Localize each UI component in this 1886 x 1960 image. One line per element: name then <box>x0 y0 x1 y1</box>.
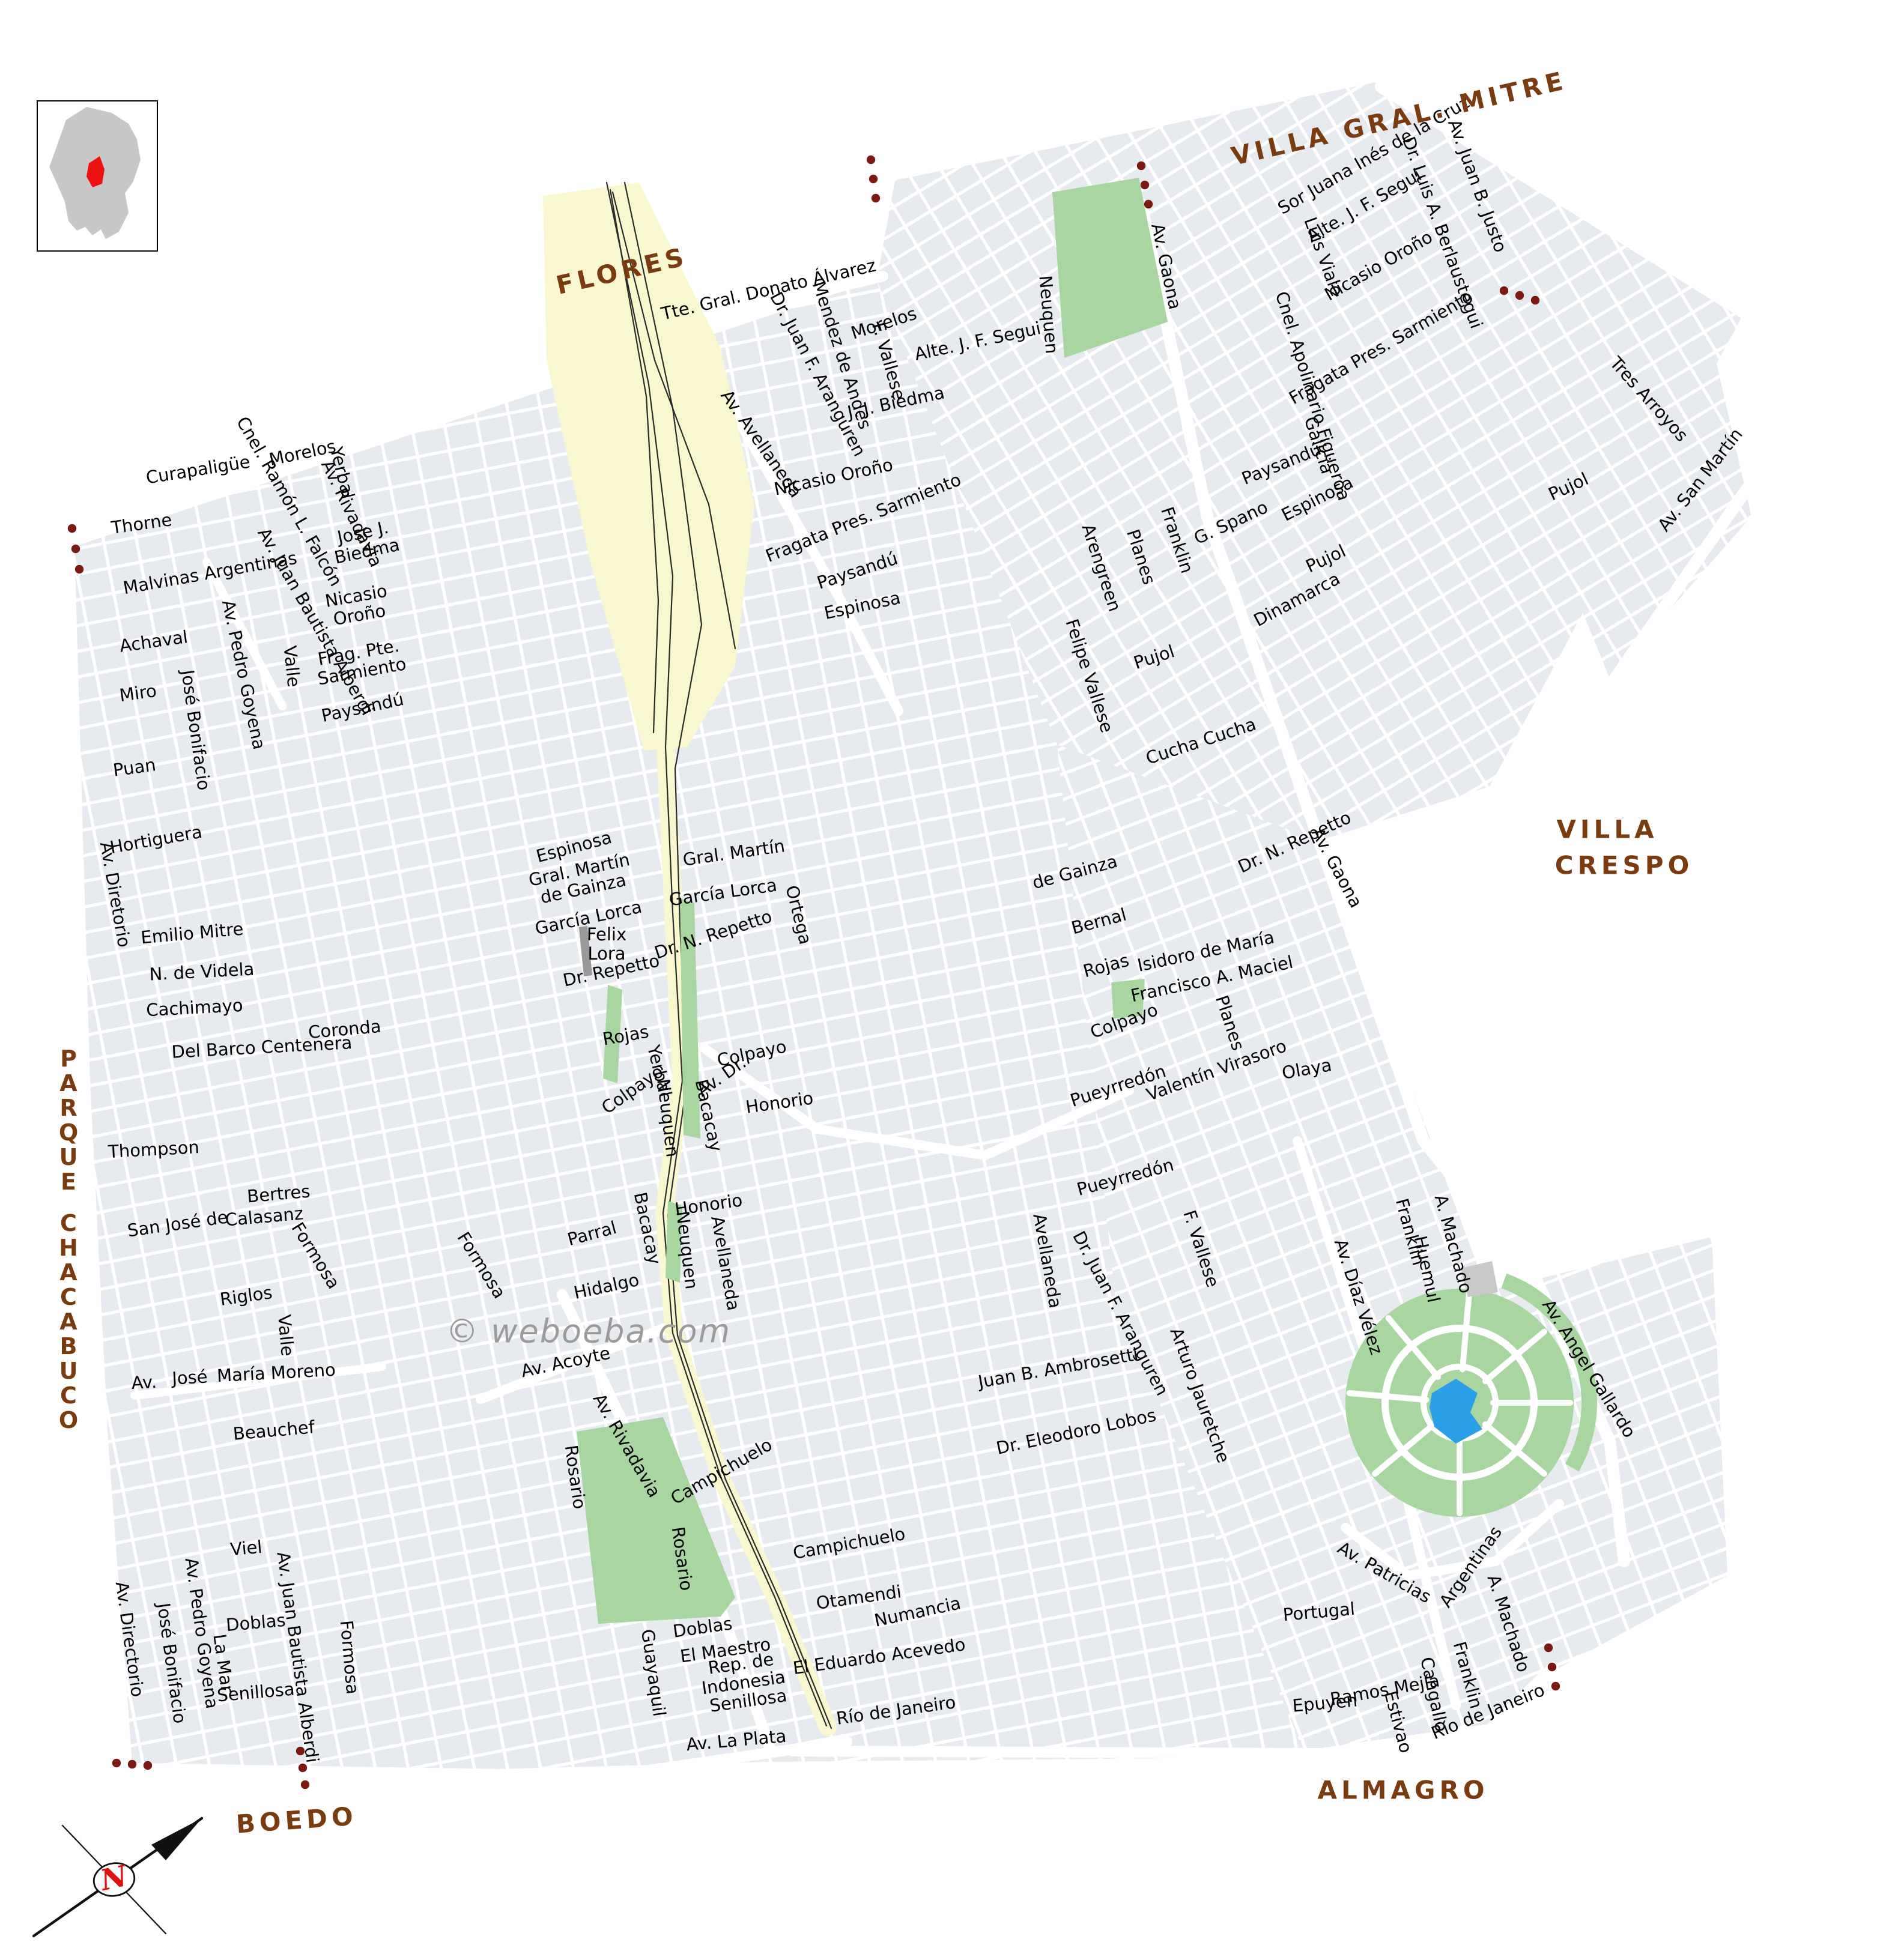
neighborhood-label-letter: B <box>60 1333 77 1360</box>
street-label: Valle <box>279 645 304 689</box>
neighborhood-label-letter: Q <box>59 1119 78 1146</box>
neighborhood-label-letter: C <box>60 1382 77 1409</box>
neighborhood-label: VILLA <box>1556 815 1658 844</box>
map-root: CurapaligüeThorneMalvinas ArgentinasAcha… <box>0 0 1886 1958</box>
compass-arrowhead <box>151 1818 202 1860</box>
boundary-dash <box>1544 1644 1553 1652</box>
neighborhood-label-letter: R <box>59 1095 77 1121</box>
watermark: © weboeba.com <box>446 1312 731 1350</box>
neighborhood-label: CRESPO <box>1555 851 1694 880</box>
boundary-dash <box>867 156 875 164</box>
inset-locator-map <box>37 101 157 251</box>
compass-rose: N <box>34 1818 202 1936</box>
neighborhood-label-letter: A <box>59 1070 77 1096</box>
boundary-dash <box>68 524 76 533</box>
boundary-dash <box>1531 296 1539 304</box>
boundary-dash <box>1137 162 1145 170</box>
boundary-dash <box>301 1780 309 1789</box>
boundary-dash <box>872 194 880 202</box>
boundary-dash <box>75 565 83 573</box>
boundary-dash <box>299 1764 307 1772</box>
boundary-dash <box>869 175 878 183</box>
boundary-dash <box>144 1761 152 1770</box>
street-label: Curapaligüe <box>144 452 251 488</box>
boundary-dash <box>1551 1682 1560 1690</box>
neighborhood-label-letter: C <box>60 1284 77 1310</box>
city-map: CurapaligüeThorneMalvinas ArgentinasAcha… <box>0 0 1886 1958</box>
neighborhood-label-letter: U <box>59 1358 78 1384</box>
neighborhood-label-letter: A <box>59 1259 77 1286</box>
boundary-dash <box>1141 181 1149 189</box>
boundary-dash <box>1515 291 1524 300</box>
street-label: Viel <box>229 1537 263 1560</box>
neighborhood-label-letter: H <box>59 1235 78 1261</box>
neighborhood-label-letter: U <box>59 1144 78 1170</box>
street-label: Valle <box>274 1314 298 1357</box>
boundary-dash <box>1548 1663 1556 1671</box>
street-grid <box>74 82 1751 1769</box>
boundary-dash <box>1144 200 1153 208</box>
neighborhood-label: ALMAGRO <box>1317 1776 1488 1805</box>
neighborhood-label-letter: A <box>59 1308 77 1335</box>
boundary-dash <box>128 1760 136 1768</box>
boundary-dash <box>112 1759 121 1767</box>
neighborhood-label-letter: O <box>59 1407 78 1433</box>
boundary-dash <box>71 545 80 553</box>
street-label: Av. <box>131 1372 157 1393</box>
street-label: José <box>170 1366 208 1388</box>
neighborhood-label: BOEDO <box>235 1801 358 1839</box>
neighborhood-label-letter: P <box>60 1045 77 1072</box>
neighborhood-label-letter: C <box>60 1210 77 1236</box>
neighborhood-label-letter: E <box>61 1169 76 1195</box>
boundary-dash <box>1500 286 1508 295</box>
